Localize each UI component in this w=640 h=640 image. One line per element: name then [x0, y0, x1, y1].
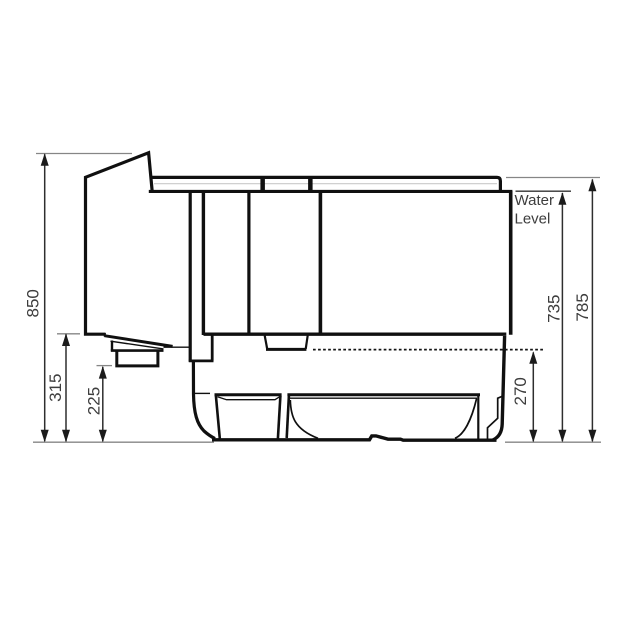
svg-text:735: 735 — [545, 295, 564, 323]
svg-text:Water: Water — [515, 192, 554, 209]
svg-text:Level: Level — [515, 210, 551, 227]
svg-text:315: 315 — [46, 374, 65, 402]
svg-text:225: 225 — [85, 387, 104, 415]
svg-text:850: 850 — [24, 289, 43, 317]
svg-text:270: 270 — [511, 377, 530, 405]
svg-text:785: 785 — [573, 293, 592, 321]
